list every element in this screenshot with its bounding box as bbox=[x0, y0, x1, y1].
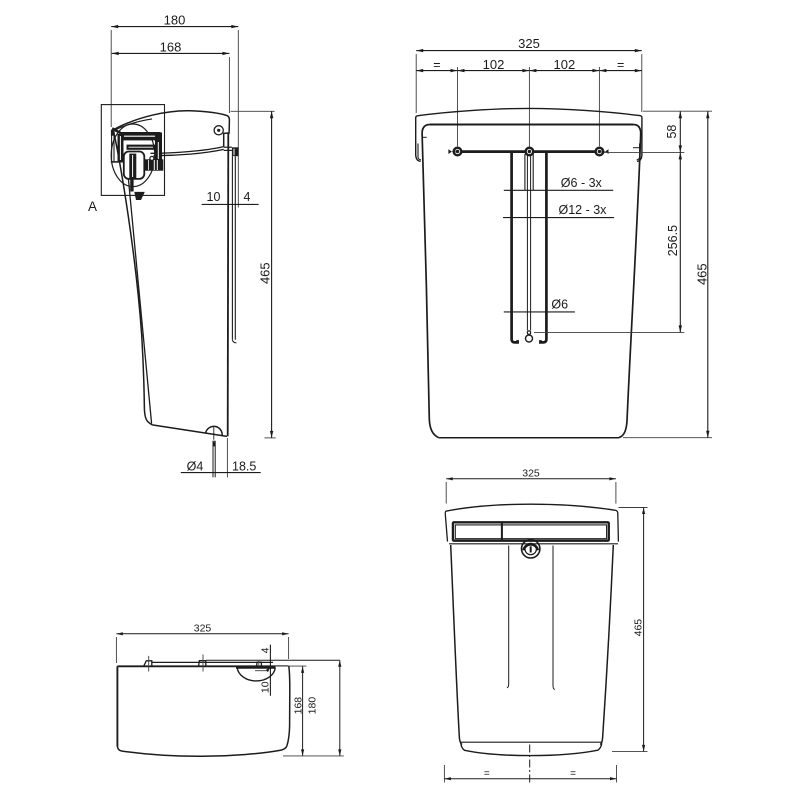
svg-text:18.5: 18.5 bbox=[232, 460, 256, 474]
svg-text:=: = bbox=[570, 769, 576, 780]
svg-text:10: 10 bbox=[207, 190, 221, 204]
svg-text:180: 180 bbox=[164, 13, 186, 28]
svg-text:168: 168 bbox=[293, 697, 305, 715]
svg-text:=: = bbox=[433, 58, 440, 72]
svg-text:Ø6 - 3x: Ø6 - 3x bbox=[561, 176, 603, 190]
svg-text:102: 102 bbox=[554, 57, 576, 72]
svg-text:325: 325 bbox=[522, 468, 540, 480]
svg-text:=: = bbox=[484, 769, 490, 780]
svg-text:465: 465 bbox=[694, 263, 709, 285]
svg-text:Ø12 - 3x: Ø12 - 3x bbox=[559, 203, 608, 217]
svg-text:180: 180 bbox=[307, 697, 319, 715]
svg-text:Ø4: Ø4 bbox=[187, 460, 204, 474]
svg-text:Ø6: Ø6 bbox=[551, 298, 568, 312]
svg-text:=: = bbox=[617, 58, 624, 72]
svg-text:A: A bbox=[88, 199, 97, 214]
svg-text:4: 4 bbox=[244, 190, 251, 204]
svg-text:465: 465 bbox=[257, 262, 272, 284]
svg-text:256.5: 256.5 bbox=[666, 225, 680, 256]
svg-text:168: 168 bbox=[160, 39, 182, 54]
svg-text:465: 465 bbox=[633, 619, 645, 637]
svg-text:102: 102 bbox=[483, 57, 505, 72]
svg-text:58: 58 bbox=[665, 125, 679, 139]
svg-text:325: 325 bbox=[518, 36, 540, 51]
svg-text:325: 325 bbox=[194, 623, 212, 635]
svg-text:4: 4 bbox=[259, 647, 271, 653]
svg-text:10: 10 bbox=[259, 681, 271, 693]
